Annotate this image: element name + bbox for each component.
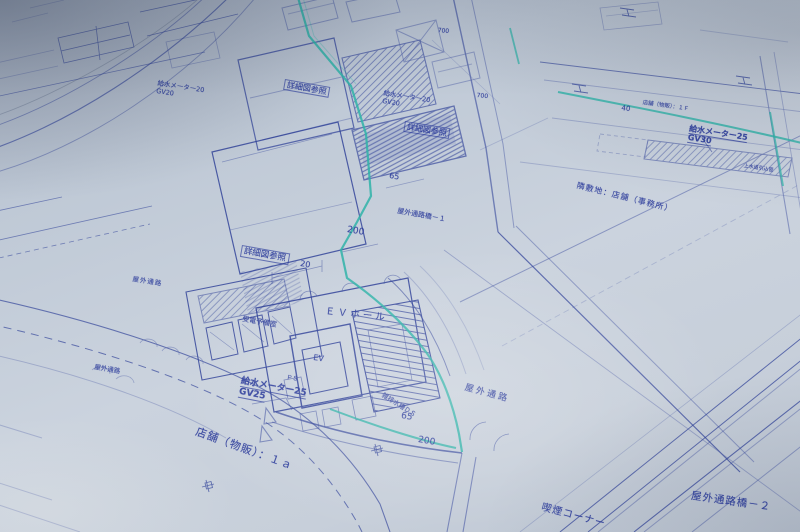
dim-20: 20 (300, 259, 312, 270)
section-tick (736, 76, 752, 85)
central-main-building (212, 122, 378, 284)
dim-700-a: 700 (437, 27, 449, 35)
dim-65-a: 65 (389, 171, 401, 182)
door-arcs-south (470, 422, 509, 451)
gv20-text: GV20 (156, 87, 175, 98)
dim-700-b: 700 (476, 92, 488, 100)
corridor-bridge-1 (444, 226, 800, 514)
blueprint-photo: 詳細図参照 詳細図参照 詳細図参照 給水メーター20 GV20 給水メーター20… (0, 0, 800, 532)
scallop-bumps (140, 339, 203, 364)
dim-40: 40 (621, 104, 631, 113)
cross-marker (202, 480, 214, 492)
right-site (460, 2, 800, 346)
ev-shaft-inner (302, 342, 348, 394)
top-center-buildings (238, 0, 514, 232)
top-left-buildings (0, 0, 238, 80)
label-ev: EV (313, 353, 325, 364)
valve-symbols (260, 408, 276, 442)
gv20-text: GV20 (382, 97, 401, 108)
pencil-line (0, 0, 206, 118)
blueprint-linework (0, 0, 800, 532)
dim-65-b: 65 (400, 411, 413, 423)
road-curves-top-left (0, 0, 260, 174)
building-edge-double-line (452, 0, 498, 232)
dashed-centerline (0, 324, 362, 532)
bottom-left-road (0, 298, 390, 532)
